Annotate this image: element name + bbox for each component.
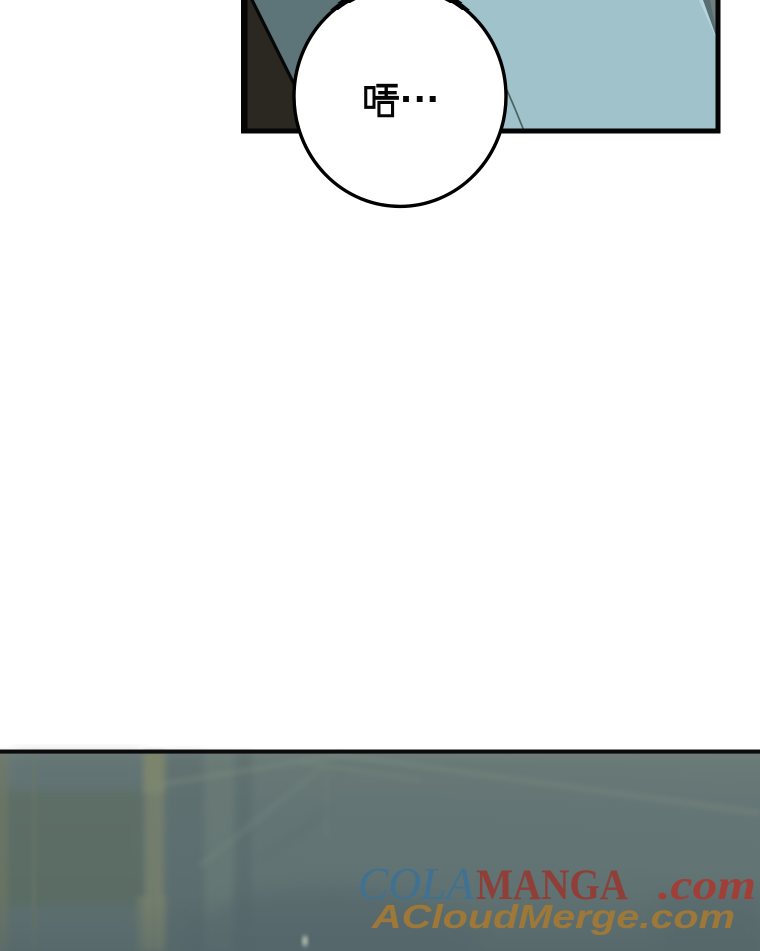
svg-text:ACloudMerge.com: ACloudMerge.com [371, 898, 735, 935]
